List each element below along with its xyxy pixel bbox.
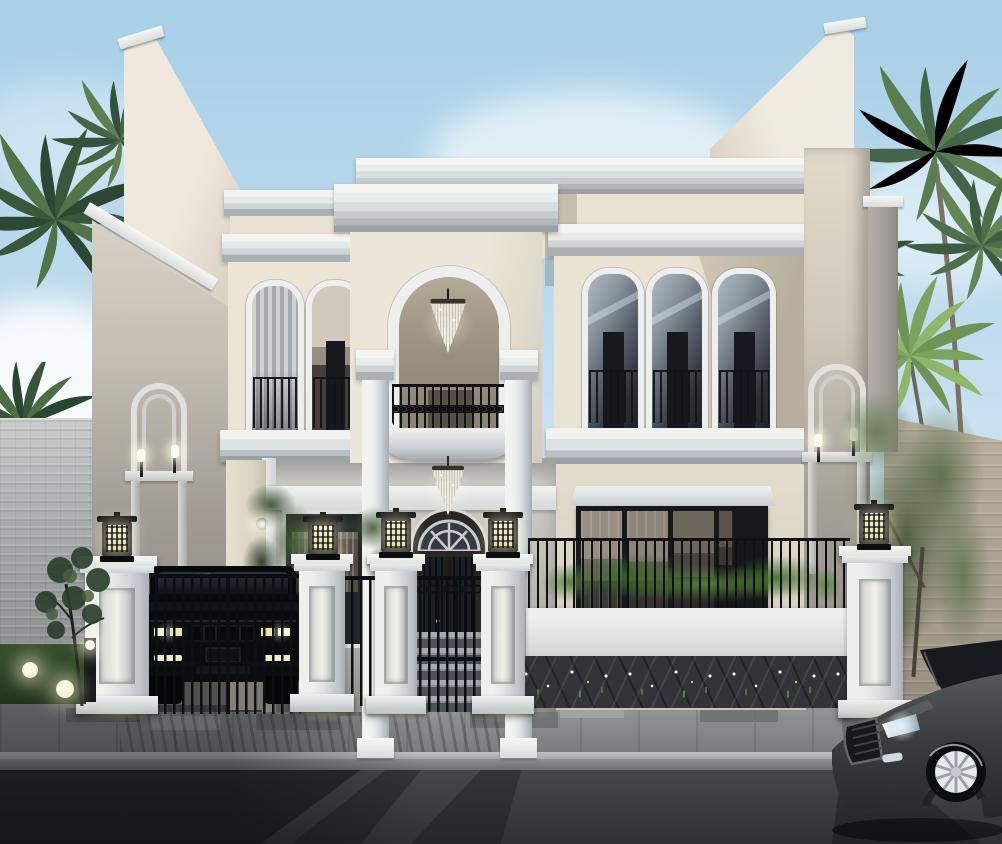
light-pool [72,704,168,722]
column-base [500,738,537,758]
lamp-foot [857,544,891,550]
right-bay-cornice [548,224,810,256]
glass-reflection [718,288,770,331]
lamp-foot [379,552,413,558]
ball-light [22,662,38,678]
pillar-panel [99,588,135,684]
villa-exterior-render [0,0,1002,844]
window-railing [719,370,769,423]
sconce-icon [173,457,176,473]
arched-window [646,268,708,440]
pillar-lamp [379,508,413,558]
arched-window [246,280,304,444]
driveway-gate [146,574,306,714]
lamp-body [308,522,338,554]
fence-railing [528,538,850,615]
column-capital [356,350,394,380]
window-header-trim [570,486,776,506]
niche-entablature [802,452,872,462]
column-base [357,738,394,758]
light-pool [356,707,446,723]
lamp-glass [492,521,514,548]
door-fanlight [417,515,481,551]
pillar-cap-step [80,566,154,573]
lamp-body [102,522,132,556]
sconce-icon [140,461,143,477]
wall-sconce [850,428,858,441]
pillar-cap-step [476,564,530,571]
pillar-panel [491,586,516,684]
lamp-foot [486,552,520,558]
window-railing [653,370,701,423]
window-glass [252,286,298,438]
right-bay-ledge [546,428,812,464]
pillar-panel [309,586,335,682]
pedestrian-gate [410,576,482,712]
lamp-foot [100,556,134,562]
window-glass [588,274,638,434]
pillar-cap-step [370,564,422,571]
lamp-glass [312,525,334,550]
pillar-lamp [100,512,134,562]
side-pier-cap [863,196,903,207]
bollard-light [84,638,96,702]
pillar-cap-step [842,556,908,563]
arched-window [712,268,776,440]
pillar-shaft [299,571,345,694]
arched-window [582,268,644,440]
light-pool [462,707,552,723]
lamp-body [859,510,889,544]
window-glass [718,274,770,434]
lamp-foot [306,554,340,560]
window-glass [652,274,702,434]
sconce-icon [817,446,820,462]
bollard-glow [85,640,95,650]
pillar-shaft [375,571,417,696]
side-pier [868,207,898,452]
chandelier-lower [421,456,475,520]
entry-pillar [372,554,420,714]
pillar-lamp [857,500,891,550]
window-railing [253,377,297,428]
glass-reflection [588,289,638,330]
lamp-glass [106,525,128,552]
paver-tile [700,708,778,722]
pillar-shaft [481,571,525,696]
niche-inner-arch [819,375,855,453]
flower-bed [514,664,848,702]
pillar-lamp [306,512,340,560]
lamp-body [488,518,518,552]
niche-inner-arch [142,394,176,472]
ball-light [56,680,74,698]
railing-ornament-row [392,405,504,413]
gate-center-stile [226,578,230,714]
fence-pillar [296,554,348,712]
garden-spotlight-glow [256,518,268,530]
wall-sconce [137,449,145,462]
gate-scrollwork [410,582,482,595]
window-railing [589,370,637,423]
wall-niche-left [131,383,187,583]
portico-cornice [334,184,558,232]
gray-sedan [832,638,1002,844]
chandelier-upper [419,288,477,358]
sconce-icon [852,440,855,456]
pillar-cap-step [294,564,350,571]
wall-sconce [814,434,822,447]
pillar-lamp [486,508,520,558]
brick-boundary-wall-left [0,418,94,648]
lamp-glass [863,513,885,540]
glass-reflection [652,289,702,330]
gate-rail [410,657,482,661]
niche-entablature [125,471,193,481]
entry-pillar [478,554,528,714]
wall-sconce [171,445,179,458]
column-capital [500,350,538,380]
lawn [0,644,86,704]
lamp-glass [385,521,407,548]
lamp-body [381,518,411,552]
pillar-panel [384,586,408,684]
